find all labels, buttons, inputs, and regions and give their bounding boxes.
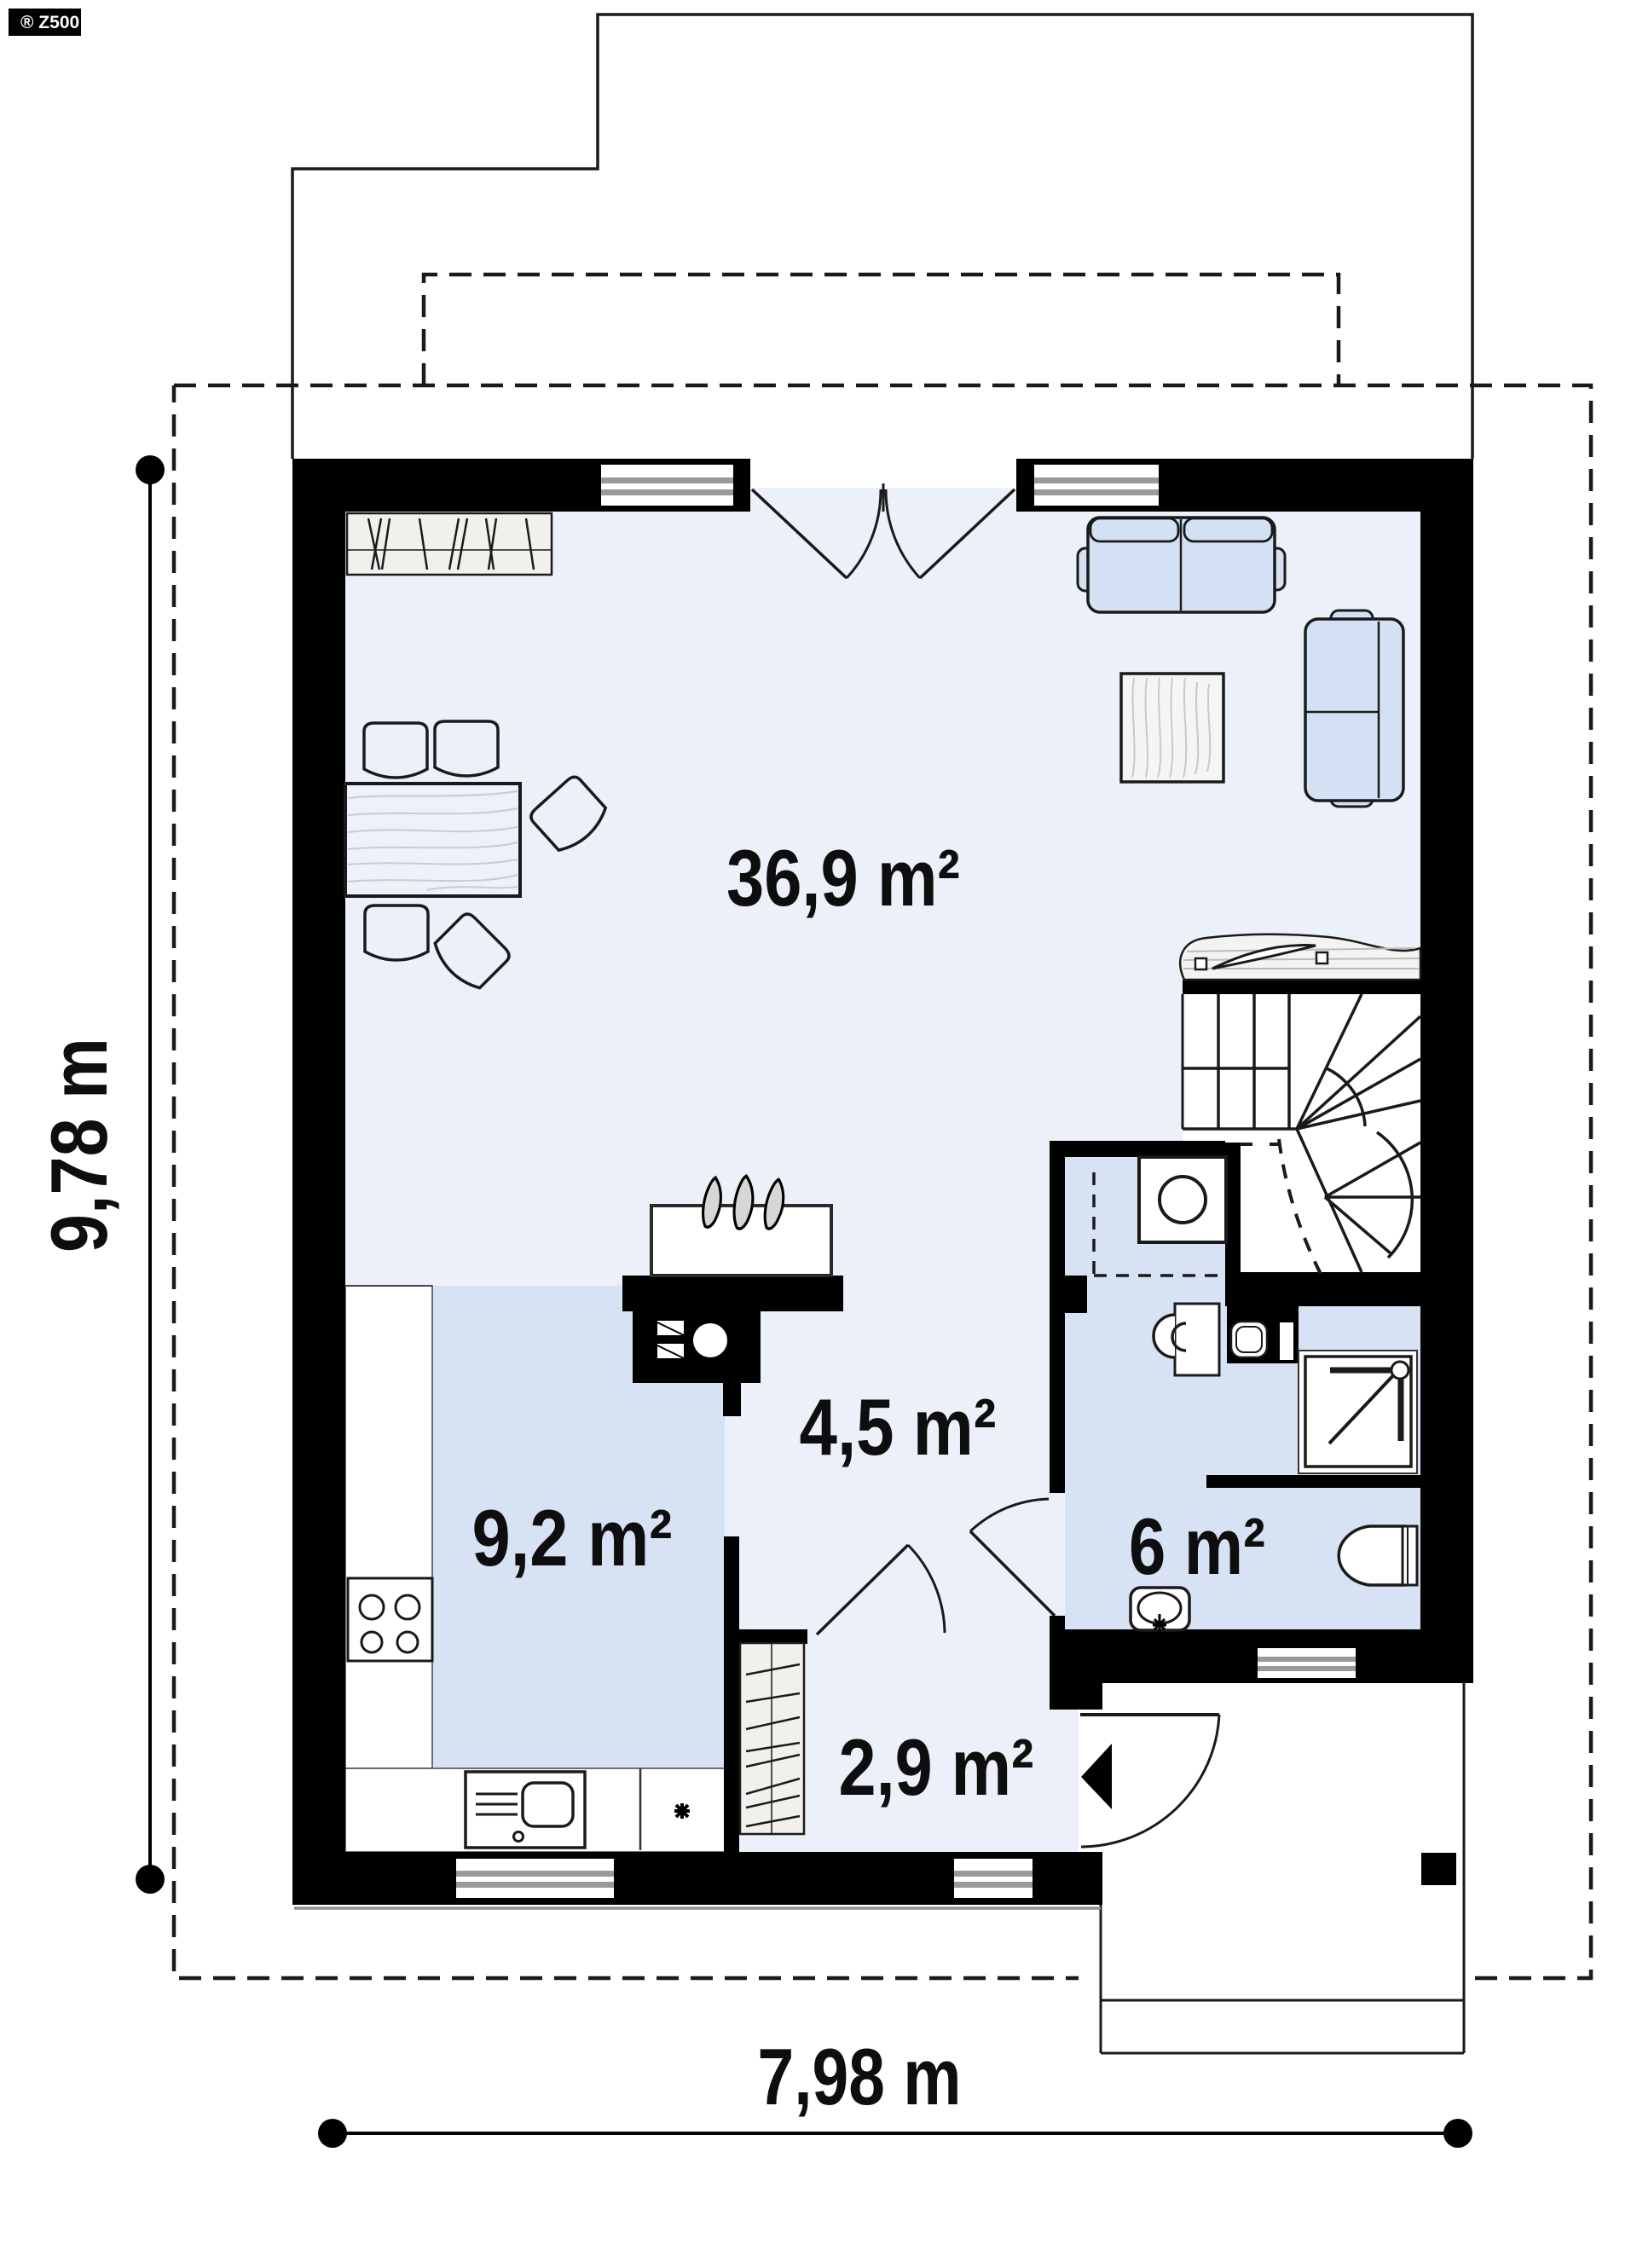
svg-text:7,98 m: 7,98 m: [758, 2032, 962, 2121]
svg-text:9,78 m: 9,78 m: [34, 1038, 124, 1253]
svg-text:2,9 m²: 2,9 m²: [839, 1722, 1034, 1812]
svg-text:9,2 m²: 9,2 m²: [472, 1493, 673, 1582]
svg-text:4,5 m²: 4,5 m²: [800, 1382, 997, 1472]
svg-text:® Z500: ® Z500: [20, 13, 79, 32]
svg-text:36,9 m²: 36,9 m²: [726, 833, 960, 923]
svg-text:6 m²: 6 m²: [1129, 1501, 1265, 1591]
